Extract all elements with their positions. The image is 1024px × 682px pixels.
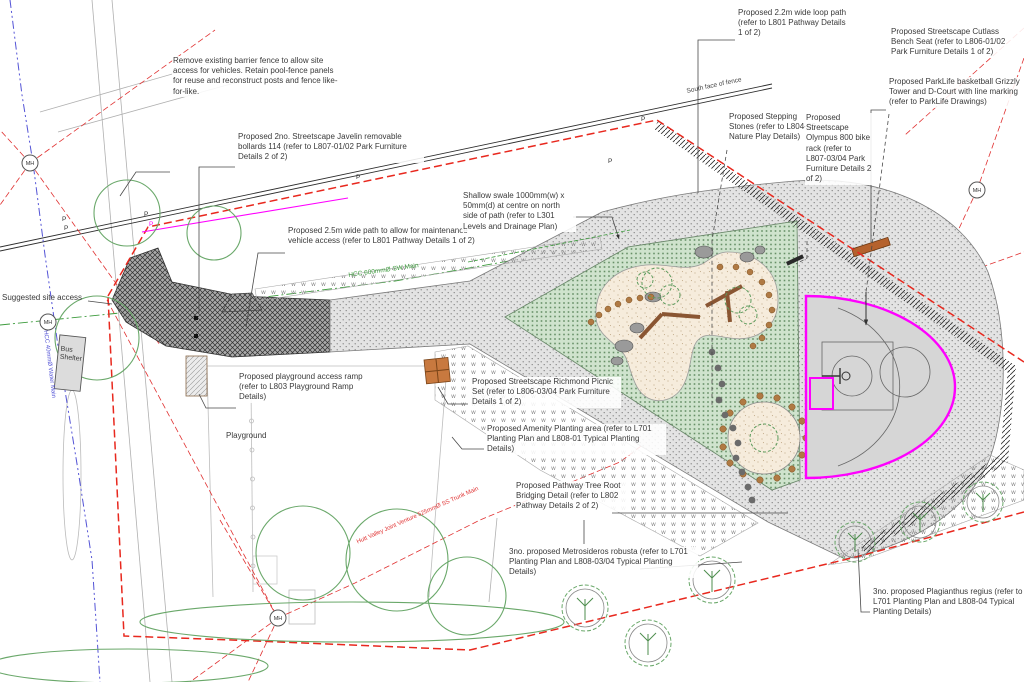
annotation-access-ramp: Proposed playground access ramp (refer t… xyxy=(238,372,382,403)
playground-label: Playground xyxy=(226,431,266,441)
annotation-remove-fence: Remove existing barrier fence to allow s… xyxy=(172,56,342,97)
svg-text:P: P xyxy=(356,174,360,181)
manhole-marker: MH xyxy=(969,182,985,198)
annotation-site-access: Suggested site access xyxy=(2,293,82,303)
annotation-swale: Shallow swale 1000mm(w) x 50mm(d) at cen… xyxy=(462,191,576,232)
hedge xyxy=(140,602,564,642)
picnic-table-symbol xyxy=(424,357,450,383)
bus-shelter-label: Bus Shelter xyxy=(59,346,87,365)
manhole-marker: MH xyxy=(270,610,286,626)
annotation-amenity: Proposed Amenity Planting area (refer to… xyxy=(486,424,666,455)
svg-text:P: P xyxy=(608,158,612,165)
entry-path-surface xyxy=(112,248,330,357)
annotation-basketball: Proposed ParkLife basketball Grizzly Tow… xyxy=(888,77,1024,108)
planting-mound xyxy=(728,402,800,474)
svg-text:MH: MH xyxy=(44,320,53,326)
manhole-marker: MH xyxy=(22,155,38,171)
svg-text:MH: MH xyxy=(26,161,35,167)
annotation-bollards: Proposed 2no. Streetscape Javelin remova… xyxy=(237,132,424,163)
annotation-bike-rack: Proposed Streetscape Olympus 800 bike ra… xyxy=(805,113,873,185)
annotation-metrosideros: 3no. proposed Metrosideros robusta (refe… xyxy=(508,547,698,578)
plan-drawing: w xyxy=(0,0,1024,682)
annotation-root-bridging: Proposed Pathway Tree Root Bridging Deta… xyxy=(515,481,629,512)
svg-text:P: P xyxy=(64,225,68,232)
svg-text:P: P xyxy=(62,216,66,223)
svg-text:P: P xyxy=(144,211,148,218)
svg-text:MH: MH xyxy=(973,188,982,194)
manhole-marker: MH xyxy=(40,314,56,330)
annotation-loop-path: Proposed 2.2m wide loop path (refer to L… xyxy=(737,8,849,39)
annotation-plagianthus: 3no. proposed Plagianthus regius (refer … xyxy=(872,587,1024,618)
annotation-picnic: Proposed Streetscape Richmond Picnic Set… xyxy=(471,377,621,408)
site-plan-canvas: w xyxy=(0,0,1024,682)
hedge xyxy=(0,649,268,682)
access-ramp-surface xyxy=(186,356,207,396)
svg-text:MH: MH xyxy=(274,616,283,622)
grizzly-tower-pad xyxy=(810,378,833,409)
svg-text:P: P xyxy=(149,221,153,228)
annotation-bench: Proposed Streetscape Cutlass Bench Seat … xyxy=(890,27,1024,58)
svg-text:P: P xyxy=(641,116,645,123)
